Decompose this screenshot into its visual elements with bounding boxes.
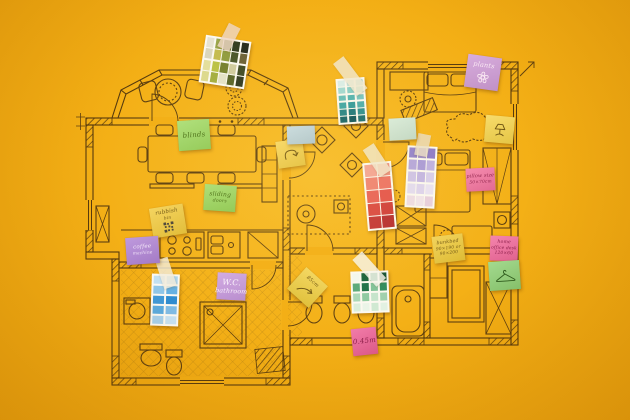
sticky-note-pillow-size: pillow size50×70cm (465, 167, 495, 191)
note-text: machine (133, 251, 153, 258)
sticky-note-blue-blank (287, 126, 316, 145)
note-layer: blindsslidingdoorsrubbishbincoffeemachin… (0, 0, 630, 420)
sticky-note-hanger-note (488, 260, 521, 291)
sticky-note-blinds: blinds (177, 119, 211, 151)
note-text: 90×200 (440, 250, 459, 258)
sticky-note-home-office-desk: homeoffice desk120×60 (490, 236, 519, 262)
photo-scene: blindsslidingdoorsrubbishbincoffeemachin… (0, 0, 630, 420)
sticky-note-rubbish-bin: rubbishbin (149, 204, 187, 239)
note-text: blinds (182, 130, 205, 140)
note-text: 120×60 (494, 251, 513, 257)
sticky-note-coffee-machine: coffeemachine (125, 236, 160, 265)
note-text: 0.45m (352, 336, 376, 347)
sticky-note-sliding-doors: slidingdoors (203, 184, 237, 212)
flower-doodle-icon (475, 70, 490, 85)
note-text: doors (212, 198, 227, 205)
note-text: bathroom (215, 287, 248, 296)
note-text: 50×70cm (469, 179, 492, 186)
lamp-doodle-icon (491, 121, 508, 138)
curve-arrow-doodle-icon (281, 145, 301, 162)
sticky-note-plants: plants (464, 54, 502, 91)
sticky-note-lamp-note (484, 115, 515, 144)
sticky-note-mint-blank (388, 117, 416, 140)
sticky-note-wc: W.C.bathroom (216, 272, 246, 300)
hanger-doodle-icon (493, 268, 516, 284)
sticky-note-bunkbed: bunkbed90×190 or90×200 (431, 233, 465, 264)
sticky-note-width-85: 85cm (287, 267, 328, 308)
sticky-note-door-width: 0.45m (351, 327, 379, 356)
qr-doodle-icon (163, 221, 176, 234)
